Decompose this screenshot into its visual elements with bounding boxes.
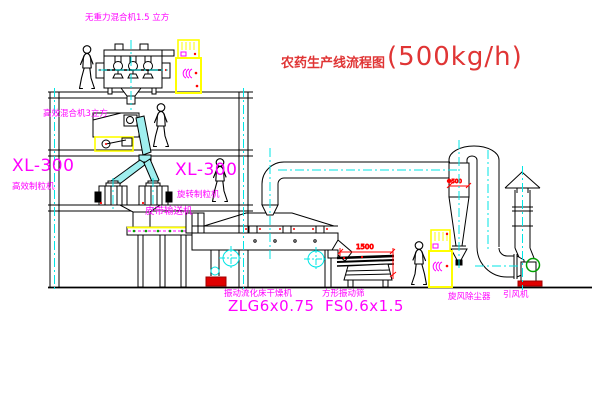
- label-gravity-free-mixer: 无重力混合机1.5 立方: [85, 14, 169, 23]
- fluid-bed-dryer: [186, 213, 352, 287]
- diagram-title-text: 农药生产线流程图: [281, 44, 385, 71]
- gravity-free-mixer: [96, 44, 174, 104]
- label-dryer-model: ZLG6x0.75: [228, 299, 315, 314]
- diagram-title: 农药生产线流程图 (500kg/h): [281, 42, 523, 72]
- flow-diagram: 1500 Φ500 农药生产线流程图 (500kg/h) 无重力混合机1.5 立…: [0, 0, 600, 403]
- label-cyclone: 旋风除尘器: [448, 293, 491, 302]
- cyclone-diameter-dimension: Φ500: [447, 179, 462, 185]
- diagram-title-capacity: (500kg/h): [387, 42, 523, 72]
- control-cabinet-right: [429, 230, 452, 287]
- label-belt-conveyor: 皮带输送机: [145, 207, 193, 217]
- label-high-efficiency-mixer: 高效混合机3立方: [43, 110, 108, 119]
- y-distributor-chute: [108, 155, 159, 186]
- label-fan: 引风机: [503, 291, 529, 300]
- cyclone-separator: [449, 146, 499, 265]
- label-left-granulator-model: XL-300: [12, 158, 74, 175]
- fan-inlet-duct: [477, 247, 517, 279]
- vibrating-screen: [328, 250, 394, 287]
- label-left-granulator-name: 高效制粒机: [12, 183, 55, 192]
- screen-length-dimension: 1500: [356, 243, 374, 251]
- label-screen-model: FS0.6x1.5: [325, 299, 404, 314]
- person-figure: [80, 46, 95, 89]
- person-figure: [412, 242, 427, 285]
- person-figure: [154, 104, 169, 147]
- control-cabinet-top: [176, 40, 201, 93]
- label-mid-granulator-name: 旋转制粒机: [177, 191, 220, 200]
- high-efficiency-mixer: [93, 113, 151, 155]
- induced-draft-fan: [517, 256, 542, 286]
- belt-conveyor: [127, 227, 197, 287]
- label-mid-granulator-model: XL-300: [175, 162, 237, 179]
